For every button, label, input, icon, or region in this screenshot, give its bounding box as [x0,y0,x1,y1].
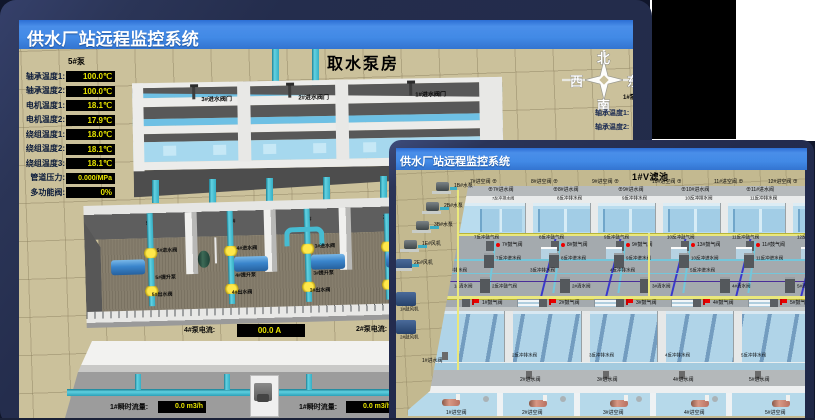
svg-text:西: 西 [570,74,583,89]
svg-text:东: 东 [627,74,633,89]
svg-text:北: 北 [597,51,610,66]
